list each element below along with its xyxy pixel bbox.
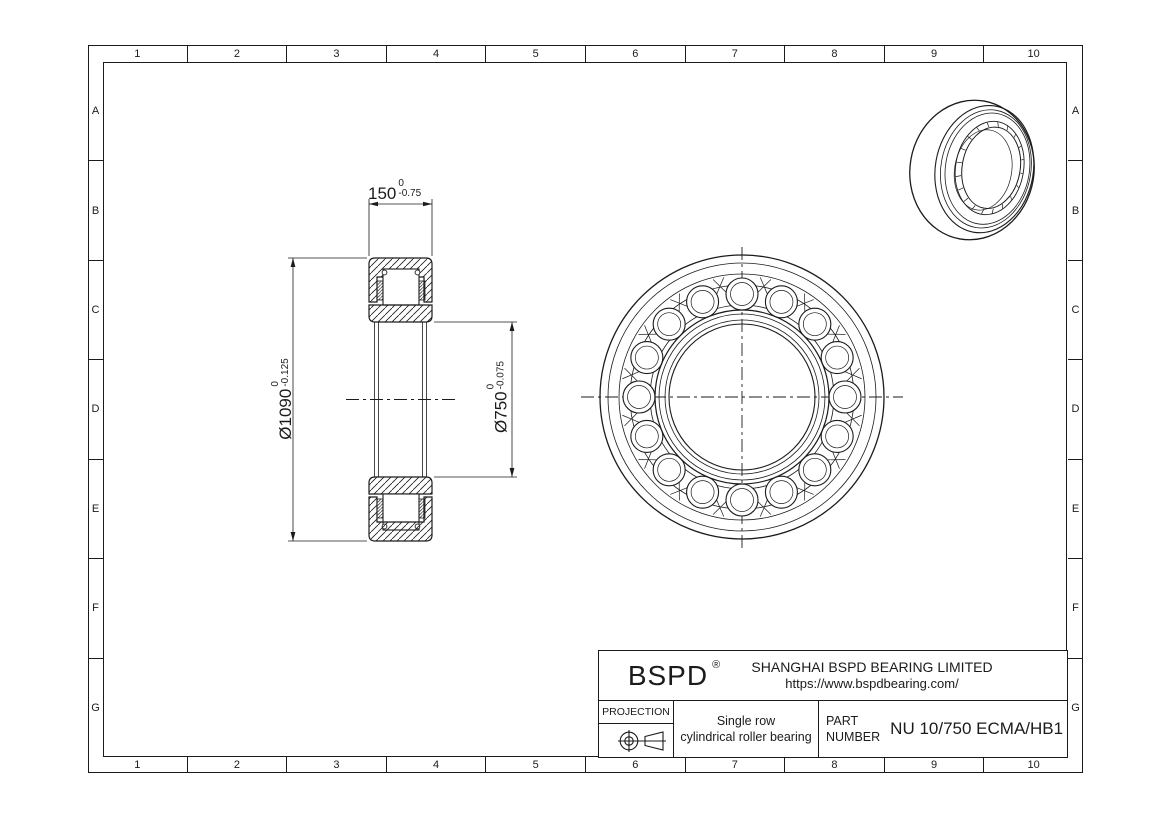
company-name: SHANGHAI BSPD BEARING LIMITED [749,659,995,676]
inner-ring-top-section [369,305,432,322]
zone-letter: E [1068,459,1083,558]
zone-letter: A [88,62,103,160]
groove-relief [382,270,387,275]
part-description: Single row cylindrical roller bearing [674,701,819,757]
zone-letter: C [88,260,103,359]
outer-diameter-dimension: Ø1090 0 -0.125 [277,344,297,454]
iso-roller-marks [949,116,1031,219]
zone-letter: B [1068,160,1083,259]
dimension-value: Ø1090 [277,389,294,440]
zone-letter: F [1068,558,1083,657]
title-block-header: BSPD ® SHANGHAI BSPD BEARING LIMITED htt… [599,651,1067,701]
cage-top-section [419,281,425,300]
description-line1: Single row [717,713,775,729]
front-view [575,240,910,555]
company-info: SHANGHAI BSPD BEARING LIMITED https://ww… [749,659,1067,692]
drawing-sheet: 1 2 3 4 5 6 7 8 9 10 1 2 3 4 5 6 7 8 9 1… [0,0,1169,826]
zone-number: 6 [585,757,685,773]
part-label-line2: NUMBER [826,729,880,745]
zone-number: 9 [884,757,984,773]
zone-letter: E [88,459,103,558]
bore-diameter-dimension: Ø750 0 -0.075 [493,345,513,450]
zone-number: 3 [286,45,386,62]
zone-number: 5 [485,45,585,62]
registered-trademark-icon: ® [712,659,720,671]
company-website: https://www.bspdbearing.com/ [749,676,995,692]
dimension-value: 150 [368,185,396,202]
zone-letter: F [88,558,103,657]
zone-number: 7 [685,45,785,62]
zone-letter: B [88,160,103,259]
inner-ring-bottom-section [369,477,432,494]
zone-ruler-bottom: 1 2 3 4 5 6 7 8 9 10 [88,757,1083,773]
groove-relief [415,270,420,275]
projection-cell: PROJECTION [599,701,674,757]
zone-number: 4 [386,757,486,773]
zone-letter: D [1068,359,1083,458]
zone-number: 1 [88,45,187,62]
zone-number: 2 [187,757,287,773]
cage-bottom-section [377,499,383,518]
brand-name: BSPD [628,661,708,691]
zone-number: 4 [386,45,486,62]
width-dimension: 150 0 -0.75 [368,185,421,205]
title-block-body: PROJECTION Single row cylindr [599,701,1067,757]
lower-tolerance: -0.125 [281,358,291,386]
dimension-value: Ø750 [493,391,510,433]
lower-tolerance: -0.075 [497,361,507,389]
zone-number: 6 [585,45,685,62]
zone-number: 10 [983,757,1083,773]
first-angle-projection-icon [599,724,673,757]
zone-number: 1 [88,757,187,773]
part-number-cell: PART NUMBER NU 10/750 ECMA/HB1 [819,701,1067,757]
iso-cage-outer [948,116,1031,220]
zone-letter: C [1068,260,1083,359]
zone-number: 2 [187,45,287,62]
zone-letter: G [1068,658,1083,757]
roller-top-section [383,269,419,305]
part-label-line1: PART [826,713,880,729]
zone-number: 3 [286,757,386,773]
zone-number: 5 [485,757,585,773]
iso-bore-back [948,125,1018,215]
zone-letter: D [88,359,103,458]
zone-letter: A [1068,62,1083,160]
zone-ruler-top: 1 2 3 4 5 6 7 8 9 10 [88,45,1083,62]
zone-ruler-left: A B C D E F G [88,62,103,757]
zone-number: 9 [884,45,984,62]
zone-number: 7 [685,757,785,773]
brand-logo: BSPD ® [599,661,749,691]
zone-number: 8 [784,45,884,62]
projection-label: PROJECTION [599,701,673,724]
isometric-view [895,80,1055,255]
title-block: BSPD ® SHANGHAI BSPD BEARING LIMITED htt… [598,650,1068,758]
description-line2: cylindrical roller bearing [680,729,811,745]
part-number-value: NU 10/750 ECMA/HB1 [890,719,1063,739]
iso-face-outer [925,98,1044,241]
zone-letter: G [88,658,103,757]
zone-ruler-right: A B C D E F G [1068,62,1083,757]
zone-number: 8 [784,757,884,773]
cage-top-section [377,281,383,300]
lower-tolerance: -0.75 [398,189,421,199]
zone-number: 10 [983,45,1083,62]
